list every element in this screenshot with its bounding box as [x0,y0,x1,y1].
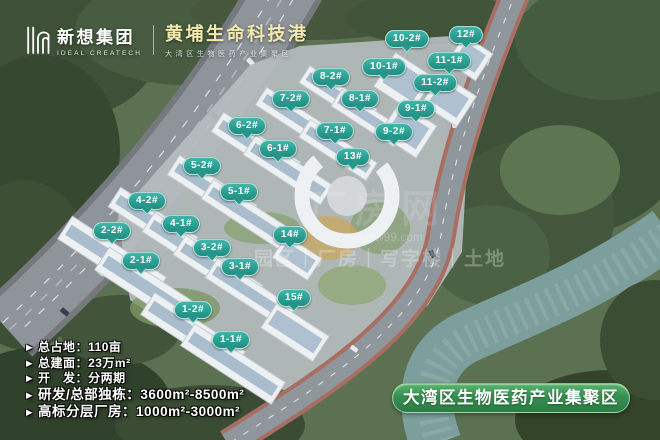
stat-label: 总占地： [38,340,88,355]
header: 新想集团 IDEAL CREATECH 黄埔生命科技港 大湾区生物医药产业集聚区 [26,20,309,59]
watermark-categories: 园区｜厂房｜写字楼｜土地 [254,247,506,270]
watermark-brand: 厂房网 [309,189,447,231]
bullet-icon: ▶ [26,405,33,421]
stats-list: ▶ 总占地： 110亩 ▶ 总建面： 23万m² ▶ 开 发： 分两期 ▶ 研发… [26,340,244,422]
stat-label: 总建面： [38,356,88,371]
ideal-createch-logo-icon [26,24,50,56]
company-name: 新想集团 [57,23,142,48]
header-divider [153,25,154,55]
stat-factory: ▶ 高标分层厂房： 1000m²-3000m² [26,404,244,422]
stat-total-area: ▶ 总占地： 110亩 [26,340,244,356]
bullet-icon: ▶ [26,356,33,371]
logo: 新想集团 IDEAL CREATECH [26,23,142,57]
company-name-en: IDEAL CREATECH [57,50,142,57]
stat-gfa: ▶ 总建面： 23万m² [26,356,244,372]
bottom-banner: 大湾区生物医药产业集聚区 [392,383,630,413]
stat-value: 23万m² [88,356,131,371]
stat-label: 开 发： [38,371,88,386]
stat-label: 研发/总部独栋： [38,387,140,403]
stat-value: 分两期 [88,371,126,386]
stat-rd-hq: ▶ 研发/总部独栋： 3600m²-8500m² [26,387,244,405]
project-title: 黄埔生命科技港 [165,20,309,46]
bullet-icon: ▶ [26,340,33,355]
bullet-icon: ▶ [26,371,33,386]
poster: 厂房网 www.cfw99.com 园区｜厂房｜写字楼｜土地 10-2#12#1… [0,0,660,440]
watermark-url: www.cfw99.com [336,230,423,244]
stat-value: 110亩 [88,340,121,355]
bullet-icon: ▶ [26,388,33,404]
stat-label: 高标分层厂房： [38,404,136,420]
project-subtitle: 大湾区生物医药产业集聚区 [165,49,309,59]
stat-value: 3600m²-8500m² [140,387,244,403]
stat-phases: ▶ 开 发： 分两期 [26,371,244,387]
stat-value: 1000m²-3000m² [136,404,240,420]
